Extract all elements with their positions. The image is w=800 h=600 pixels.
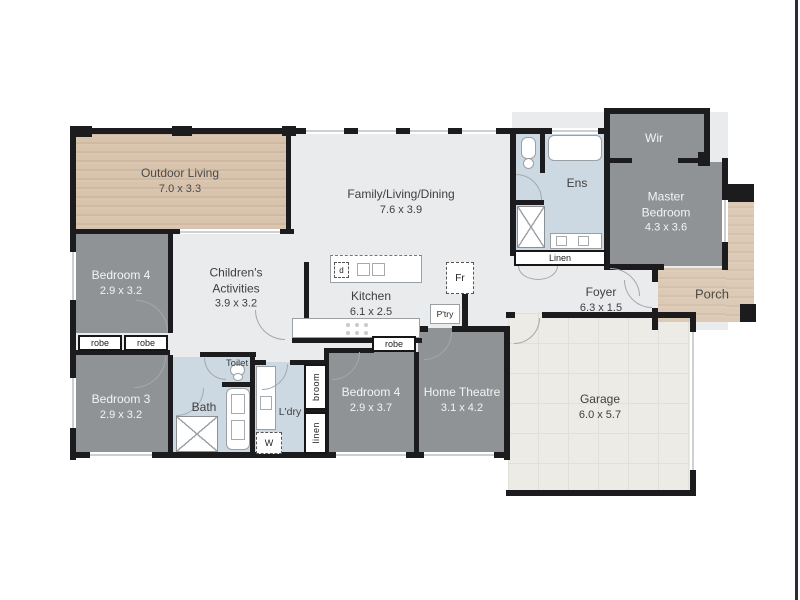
fridge-label: Fr bbox=[455, 273, 464, 284]
room-name: Wir bbox=[645, 131, 663, 147]
window-theatre-bottom bbox=[424, 452, 494, 458]
room-name: Garage bbox=[579, 392, 621, 408]
room-name: Bedroom 4 bbox=[342, 385, 401, 401]
wall-bath-right bbox=[250, 357, 255, 453]
room-name: Kitchen bbox=[350, 289, 392, 305]
wall-master-top-a bbox=[610, 158, 632, 163]
bath-shower bbox=[176, 416, 218, 452]
pantry-box: P'try bbox=[430, 304, 460, 324]
floor-plan: d Fr P'try Linen W robe robe robe broom … bbox=[0, 0, 800, 600]
garage-door-opening bbox=[690, 332, 696, 470]
wall-theatre-top-b bbox=[452, 326, 508, 332]
room-name-line2: Bedroom bbox=[642, 205, 691, 221]
wall-garage-bottom bbox=[506, 490, 696, 496]
robe-label-3: robe bbox=[385, 339, 403, 349]
label-garage: Garage 6.0 x 5.7 bbox=[579, 392, 621, 422]
wc-bowl bbox=[233, 373, 243, 381]
room-dims: 7.0 x 3.3 bbox=[141, 182, 219, 196]
room-name: Bedroom 3 bbox=[92, 392, 151, 408]
wall-bedroom4l-right bbox=[168, 233, 173, 333]
label-kitchen: Kitchen 6.1 x 2.5 bbox=[350, 289, 392, 319]
wall-bedroom4m-right bbox=[414, 352, 419, 453]
window-bedroom3-left bbox=[70, 378, 76, 428]
label-childrens-activities: Children's Activities 3.9 x 3.2 bbox=[210, 265, 263, 310]
ens-toilet-cistern bbox=[521, 137, 536, 159]
room-name: Home Theatre bbox=[424, 385, 500, 401]
window-family-3 bbox=[410, 128, 448, 134]
ens-basin-2 bbox=[578, 236, 589, 246]
wall-ens-nook bbox=[540, 133, 545, 173]
ens-toilet-bowl bbox=[523, 158, 534, 169]
room-dims: 2.9 x 3.7 bbox=[342, 401, 401, 415]
porch-pillar-bottom bbox=[740, 304, 756, 322]
washer-label: W bbox=[265, 438, 274, 448]
kitchen-bench bbox=[292, 318, 420, 338]
window-master bbox=[722, 200, 728, 242]
room-name: Bath bbox=[192, 400, 217, 416]
pillar-outdoor-2 bbox=[172, 126, 192, 136]
broom-box: broom bbox=[304, 364, 327, 410]
wall-wir-top bbox=[604, 108, 710, 114]
room-dims: 3.1 x 4.2 bbox=[424, 401, 500, 415]
wall-master-top-b bbox=[678, 158, 706, 163]
washer-box: W bbox=[256, 432, 282, 454]
label-bedroom3: Bedroom 3 2.9 x 3.2 bbox=[92, 392, 151, 422]
label-family: Family/Living/Dining 7.6 x 3.9 bbox=[347, 187, 454, 217]
robe-label-2: robe bbox=[137, 338, 155, 348]
dishwasher-label: d bbox=[339, 266, 343, 275]
label-laundry: L'dry bbox=[279, 406, 301, 420]
wall-foyer-right-b bbox=[652, 308, 658, 330]
room-dims: 6.0 x 5.7 bbox=[579, 408, 621, 422]
label-toilet: Toilet bbox=[226, 358, 248, 370]
porch-pillar-top bbox=[728, 184, 754, 202]
room-name: Family/Living/Dining bbox=[347, 187, 454, 203]
room-name: Ens bbox=[567, 176, 588, 192]
label-wir: Wir bbox=[645, 131, 663, 147]
robe-box-1: robe bbox=[78, 335, 122, 351]
sink-bowl-2 bbox=[372, 263, 385, 276]
linen-hall-box: Linen bbox=[514, 250, 606, 266]
wall-toilet-top bbox=[200, 352, 256, 357]
room-name-line1: Master bbox=[642, 189, 691, 205]
bathtub-inner-2 bbox=[231, 420, 245, 440]
wall-ens-master bbox=[604, 128, 610, 268]
sink-bowl-1 bbox=[357, 263, 370, 276]
room-name: Foyer bbox=[580, 285, 622, 301]
window-bedroom4-bottom bbox=[336, 452, 406, 458]
window-bedroom3-bottom bbox=[90, 452, 152, 458]
robe-label-1: robe bbox=[91, 338, 109, 348]
window-outdoor-children bbox=[180, 229, 280, 234]
room-name: Outdoor Living bbox=[141, 166, 219, 182]
label-bath: Bath bbox=[192, 400, 217, 416]
wall-garage-left bbox=[504, 326, 510, 460]
cooktop bbox=[346, 323, 350, 327]
room-dims: 3.9 x 3.2 bbox=[210, 296, 263, 310]
robe-box-2: robe bbox=[124, 335, 168, 351]
room-name: Bedroom 4 bbox=[92, 268, 151, 284]
label-foyer: Foyer 6.3 x 1.5 bbox=[580, 285, 622, 315]
robe-box-3: robe bbox=[372, 336, 416, 352]
wall-ens-shower bbox=[516, 200, 544, 205]
label-ensuite: Ens bbox=[567, 176, 588, 192]
linen-cupboard-box: linen bbox=[304, 412, 327, 454]
room-name: Porch bbox=[695, 287, 729, 304]
ens-bathtub bbox=[548, 135, 602, 161]
window-ens bbox=[552, 128, 598, 134]
wall-foyer-right-a bbox=[652, 268, 658, 282]
dishwasher-box: d bbox=[334, 262, 349, 278]
label-outdoor-living: Outdoor Living 7.0 x 3.3 bbox=[141, 166, 219, 196]
room-dims: 7.6 x 3.9 bbox=[347, 203, 454, 217]
room-name: Toilet bbox=[226, 358, 248, 370]
room-dims: 6.1 x 2.5 bbox=[350, 305, 392, 319]
room-name-line2: Activities bbox=[210, 281, 263, 297]
window-family-1 bbox=[306, 128, 344, 134]
linen-hall-label: Linen bbox=[549, 253, 571, 263]
broom-label: broom bbox=[311, 373, 321, 401]
bathtub-inner-1 bbox=[231, 394, 245, 414]
wall-bath-left bbox=[168, 355, 173, 453]
label-home-theatre: Home Theatre 3.1 x 4.2 bbox=[424, 385, 500, 415]
window-family-2 bbox=[358, 128, 396, 134]
label-bedroom4-left: Bedroom 4 2.9 x 3.2 bbox=[92, 268, 151, 298]
linen-cupboard-label: linen bbox=[311, 422, 321, 444]
image-edge-line bbox=[795, 0, 798, 600]
window-bedroom4-left bbox=[70, 252, 76, 300]
room-dims: 6.3 x 1.5 bbox=[580, 301, 622, 315]
room-name: L'dry bbox=[279, 406, 301, 420]
room-dims: 2.9 x 3.2 bbox=[92, 284, 151, 298]
room-dims: 4.3 x 3.6 bbox=[642, 220, 691, 234]
window-family-4 bbox=[462, 128, 496, 134]
ens-basin-1 bbox=[556, 236, 567, 246]
room-dims: 2.9 x 3.2 bbox=[92, 408, 151, 422]
fridge-box: Fr bbox=[446, 262, 474, 294]
label-master-bedroom: Master Bedroom 4.3 x 3.6 bbox=[642, 189, 691, 234]
laundry-tub bbox=[260, 396, 272, 410]
wall-pantry bbox=[462, 292, 468, 328]
wall-outdoor-family bbox=[286, 133, 291, 229]
label-bedroom4-mid: Bedroom 4 2.9 x 3.7 bbox=[342, 385, 401, 415]
pantry-label: P'try bbox=[437, 309, 454, 319]
ens-shower bbox=[517, 206, 545, 248]
label-porch: Porch bbox=[695, 287, 729, 304]
room-porch-right bbox=[726, 188, 754, 322]
room-name-line1: Children's bbox=[210, 265, 263, 281]
